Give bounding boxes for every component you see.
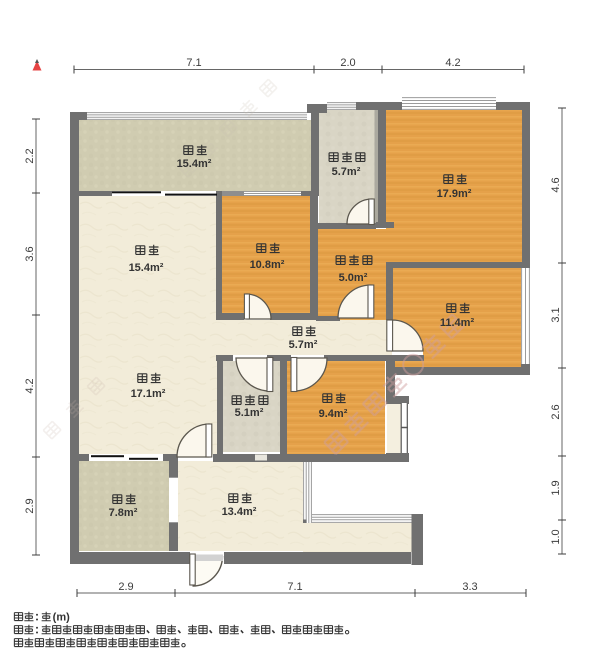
svg-text:3.1: 3.1 [550,307,562,322]
svg-text:5.1m²: 5.1m² [235,407,264,419]
svg-text:7.8m²: 7.8m² [109,507,138,519]
svg-text:4.2: 4.2 [24,378,36,393]
svg-text:2.2: 2.2 [24,148,36,163]
svg-text:2.9: 2.9 [118,581,133,593]
svg-text:15.4m²: 15.4m² [177,158,212,170]
svg-text:4.2: 4.2 [445,57,460,69]
svg-text:15.4m²: 15.4m² [129,262,164,274]
svg-text:7.1: 7.1 [287,581,302,593]
svg-text:7.1: 7.1 [186,57,201,69]
svg-text:1.0: 1.0 [550,529,562,544]
svg-text:10.8m²: 10.8m² [250,259,285,271]
svg-text:13.4m²: 13.4m² [222,506,257,518]
svg-text:9.4m²: 9.4m² [319,408,348,420]
svg-text:3.3: 3.3 [462,581,477,593]
svg-text:5.7m²: 5.7m² [332,166,361,178]
svg-text:2.9: 2.9 [24,498,36,513]
svg-text:(m): (m) [53,612,70,624]
svg-text:17.1m²: 17.1m² [131,388,166,400]
svg-text:3.6: 3.6 [24,246,36,261]
svg-text:2.0: 2.0 [340,57,355,69]
svg-text:1.9: 1.9 [550,480,562,495]
svg-text:4.6: 4.6 [550,177,562,192]
svg-text:17.9m²: 17.9m² [437,188,472,200]
svg-text:5.0m²: 5.0m² [339,272,368,284]
svg-text:11.4m²: 11.4m² [440,317,475,329]
svg-text:5.7m²: 5.7m² [289,339,318,351]
svg-text:2.6: 2.6 [550,404,562,419]
